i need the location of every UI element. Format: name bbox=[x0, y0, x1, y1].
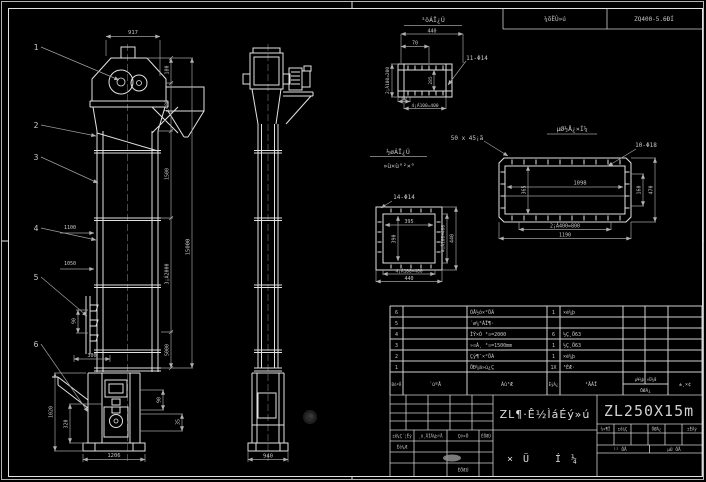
bom-row-no: 4 bbox=[395, 332, 398, 338]
dim-base-right1: 160 bbox=[637, 185, 643, 194]
dim-1500: 1500 bbox=[165, 168, 171, 180]
balloon-6: 6 bbox=[34, 340, 39, 349]
bom-row-qty: 1 bbox=[552, 310, 555, 316]
detail-base: µØ½Å¿×Í¼ 50 x 45¡ã 10-Φ18 1098 365 160 4… bbox=[451, 124, 657, 239]
bom-row-material: ½Ç¸Ö63 bbox=[563, 331, 581, 338]
detail-outlet-title: ³öÁÏ¿Ú bbox=[421, 15, 445, 24]
dim-base-bottom2: 1190 bbox=[559, 233, 571, 239]
bom-header-no: ÐòºÅ bbox=[392, 382, 402, 387]
reducer-model: ZQ400-5.6ÐÍ bbox=[634, 15, 674, 23]
bom-row-no: 3 bbox=[395, 343, 398, 349]
dim-base-right2: 470 bbox=[649, 185, 655, 194]
note-1100: 1100 bbox=[64, 225, 76, 231]
label-inlet-holes: 14-Φ14 bbox=[393, 194, 415, 201]
title-block: ±ê¼Ç´¦Êý ¸ü¸ÄÎÄ¼þºÅ Ç©×Ö ÈÕÆÚ Éè¼Æ ÈÕÆÚ … bbox=[390, 395, 702, 477]
rev-header-date: ÈÕÆÚ bbox=[481, 434, 491, 439]
detail-inlet: ½øÁÏ¿Ú »ù×ù°²×° 14-Φ14 395 390 4¡Á100=40… bbox=[370, 147, 457, 282]
rev-header-file: ¸ü¸ÄÎÄ¼þºÅ bbox=[418, 434, 443, 440]
date-label: ÈÕÆÚ bbox=[458, 466, 469, 474]
side-view: 940 bbox=[243, 44, 317, 462]
sheet-frame bbox=[2, 2, 704, 480]
cad-sheet: ¼õËÙ»ú ZQ400-5.6ÐÍ 917 180 1480 1500 3¡Á… bbox=[0, 0, 706, 482]
bom-header-material: ²ÄÁÏ bbox=[585, 381, 597, 388]
dim-1480: 1480 bbox=[165, 100, 171, 112]
smudge-artifact bbox=[303, 410, 317, 424]
dim-outlet-inner: 285 bbox=[428, 76, 434, 84]
dim-180: 180 bbox=[165, 65, 171, 74]
dim-outlet-440: 440 bbox=[427, 29, 436, 35]
dim-outlet-bottom: 4¡Á100=400 bbox=[411, 102, 438, 109]
bom-row-no: 2 bbox=[395, 354, 398, 360]
dim-inlet-right1: 4¡Á100=400 bbox=[440, 225, 447, 252]
balloon-5: 5 bbox=[34, 273, 39, 282]
design-label: Éè¼Æ bbox=[397, 443, 408, 451]
balloon-callouts: 1 2 3 4 5 6 bbox=[34, 43, 119, 412]
top-strip: ¼õËÙ»ú ZQ400-5.6ÐÍ bbox=[503, 9, 703, 30]
balloon-3: 3 bbox=[34, 153, 39, 162]
dim-base-bottom1: 2¡Á400=800 bbox=[550, 223, 580, 230]
label-base-holes: 10-Φ18 bbox=[635, 142, 657, 149]
bom-row-no: 6 bbox=[395, 310, 398, 316]
bom-table: 6 ÕÅ½ô×°ÖÃ 1 ×é¼þ 5 ´ø¼°ÁÏ¶· 4 ÌÝ×Ó ³¤=2… bbox=[390, 306, 702, 395]
dim-base-inner: 1098 bbox=[573, 181, 586, 187]
bom-header-weight-split: µ¥¼þ ×Ü¼Æ bbox=[635, 377, 657, 383]
bom-row-qty: 1 bbox=[552, 354, 555, 360]
bom-row-qty: 1 bbox=[552, 343, 555, 349]
bom-row-qty: 6 bbox=[552, 332, 555, 338]
balloon-1: 1 bbox=[34, 43, 39, 52]
cad-drawing-canvas: ¼õËÙ»ú ZQ400-5.6ÐÍ 917 180 1480 1500 3¡Á… bbox=[0, 0, 706, 482]
note-chamfer: 50 x 45¡ã bbox=[451, 135, 484, 142]
label-outlet-holes: 11-Φ14 bbox=[466, 55, 488, 62]
dim-head-width: 917 bbox=[128, 30, 138, 36]
dim-boot-w: 1206 bbox=[107, 453, 120, 459]
dim-inlet-bottom1: 4¡Á100=400 bbox=[395, 268, 422, 275]
dim-320: 320 bbox=[64, 419, 70, 428]
bom-row-name: ´ø¼°ÁÏ¶· bbox=[470, 320, 494, 327]
stage-cell-4: ±ÈÀý bbox=[687, 427, 697, 432]
dim-inlet-right2: 440 bbox=[450, 234, 456, 243]
bom-row-material: ×é¼þ bbox=[563, 309, 575, 316]
dim-inlet-bottom2: 440 bbox=[404, 276, 413, 282]
detail-inlet-title2: »ù×ù°²×° bbox=[383, 162, 414, 170]
balloon-2: 2 bbox=[34, 121, 39, 130]
bom-row-material: ½Ç¸Ö63 bbox=[563, 342, 581, 349]
dim-300: 300 bbox=[87, 353, 96, 359]
dim-35: 35 bbox=[176, 419, 182, 425]
bom-header-remarks: ±¸×¢ bbox=[679, 382, 691, 388]
dim-total-height: 15000 bbox=[186, 239, 192, 256]
dim-outlet-left: 2¡Á100=200 bbox=[384, 67, 391, 94]
bom-header-code: ´úºÅ bbox=[429, 381, 441, 388]
dim-inlet-inner-h: 390 bbox=[392, 234, 398, 243]
bom-row-qty: 1X bbox=[550, 365, 556, 371]
sheet-index-label: µÚ ÕÅ bbox=[667, 446, 681, 453]
drawing-number: ZL250X15m bbox=[604, 402, 694, 420]
drawing-type-label: ×Ü Í¼ bbox=[507, 452, 587, 465]
dim-outlet-70: 70 bbox=[412, 41, 418, 47]
balloon-4: 4 bbox=[34, 224, 39, 233]
bom-row-no: 1 bbox=[395, 365, 398, 371]
bom-row-name: Çý¶¯×°ÖÃ bbox=[470, 353, 494, 360]
rev-header-mark: ±ê¼Ç´¦Êý bbox=[392, 434, 412, 440]
bom-header-name: Ãû³Æ bbox=[501, 381, 513, 388]
dim-side-base: 940 bbox=[263, 454, 273, 460]
bom-row-material: ×é¼þ bbox=[563, 353, 575, 360]
note-1050: 1050 bbox=[64, 261, 76, 267]
bom-row-name: »¤À¸ ³¤=1500mm bbox=[470, 342, 512, 349]
dim-3x2000: 3¡Á2000 bbox=[164, 263, 171, 284]
sheet-total-label: ¹² ÕÅ bbox=[613, 446, 627, 453]
detail-inlet-title1: ½øÁÏ¿Ú bbox=[386, 147, 410, 156]
front-view: 917 180 1480 1500 3¡Á2000 5000 15000 110… bbox=[49, 30, 205, 462]
bom-header-qty: ÊýÁ¿ bbox=[549, 382, 559, 387]
dim-base-left: 365 bbox=[522, 185, 528, 194]
dim-5000: 5000 bbox=[165, 344, 171, 356]
stage-cell-1: ½×¶Î bbox=[601, 427, 611, 432]
reducer-label: ¼õËÙ»ú bbox=[544, 16, 566, 23]
detail-outlet: ³öÁÏ¿Ú 440 70 2¡Á100=200 285 11-Φ14 40 4… bbox=[384, 15, 488, 109]
detail-base-title: µØ½Å¿×Í¼ bbox=[556, 124, 587, 133]
dim-90b: 90 bbox=[157, 397, 163, 403]
rev-header-sign: Ç©×Ö bbox=[458, 433, 469, 440]
dim-boot-h: 1020 bbox=[49, 406, 55, 418]
stage-cell-3: ÖØÁ¿ bbox=[652, 427, 662, 432]
bom-row-name: ÌÝ×Ó ³¤=2000 bbox=[470, 331, 506, 338]
bom-row-name: ÕÅ½ô×°ÖÃ bbox=[470, 309, 494, 316]
bom-row-no: 5 bbox=[395, 321, 398, 327]
drawing-title: ZL¶·Ê½ÌáÉý»ú bbox=[500, 408, 591, 421]
dim-outlet-40: 40 bbox=[401, 96, 407, 102]
bom-row-name: ÖÐ¼ä»ú¿Ç bbox=[470, 364, 494, 371]
stage-cell-2: ±ê¼Ç bbox=[618, 427, 628, 433]
bom-header-weight: ÖØÁ¿ bbox=[640, 387, 651, 394]
dim-inlet-inner-w: 395 bbox=[404, 219, 413, 225]
signature-blob bbox=[443, 455, 461, 462]
dim-90: 90 bbox=[72, 318, 78, 324]
bom-row-material: ³ÉÆ· bbox=[563, 363, 575, 371]
